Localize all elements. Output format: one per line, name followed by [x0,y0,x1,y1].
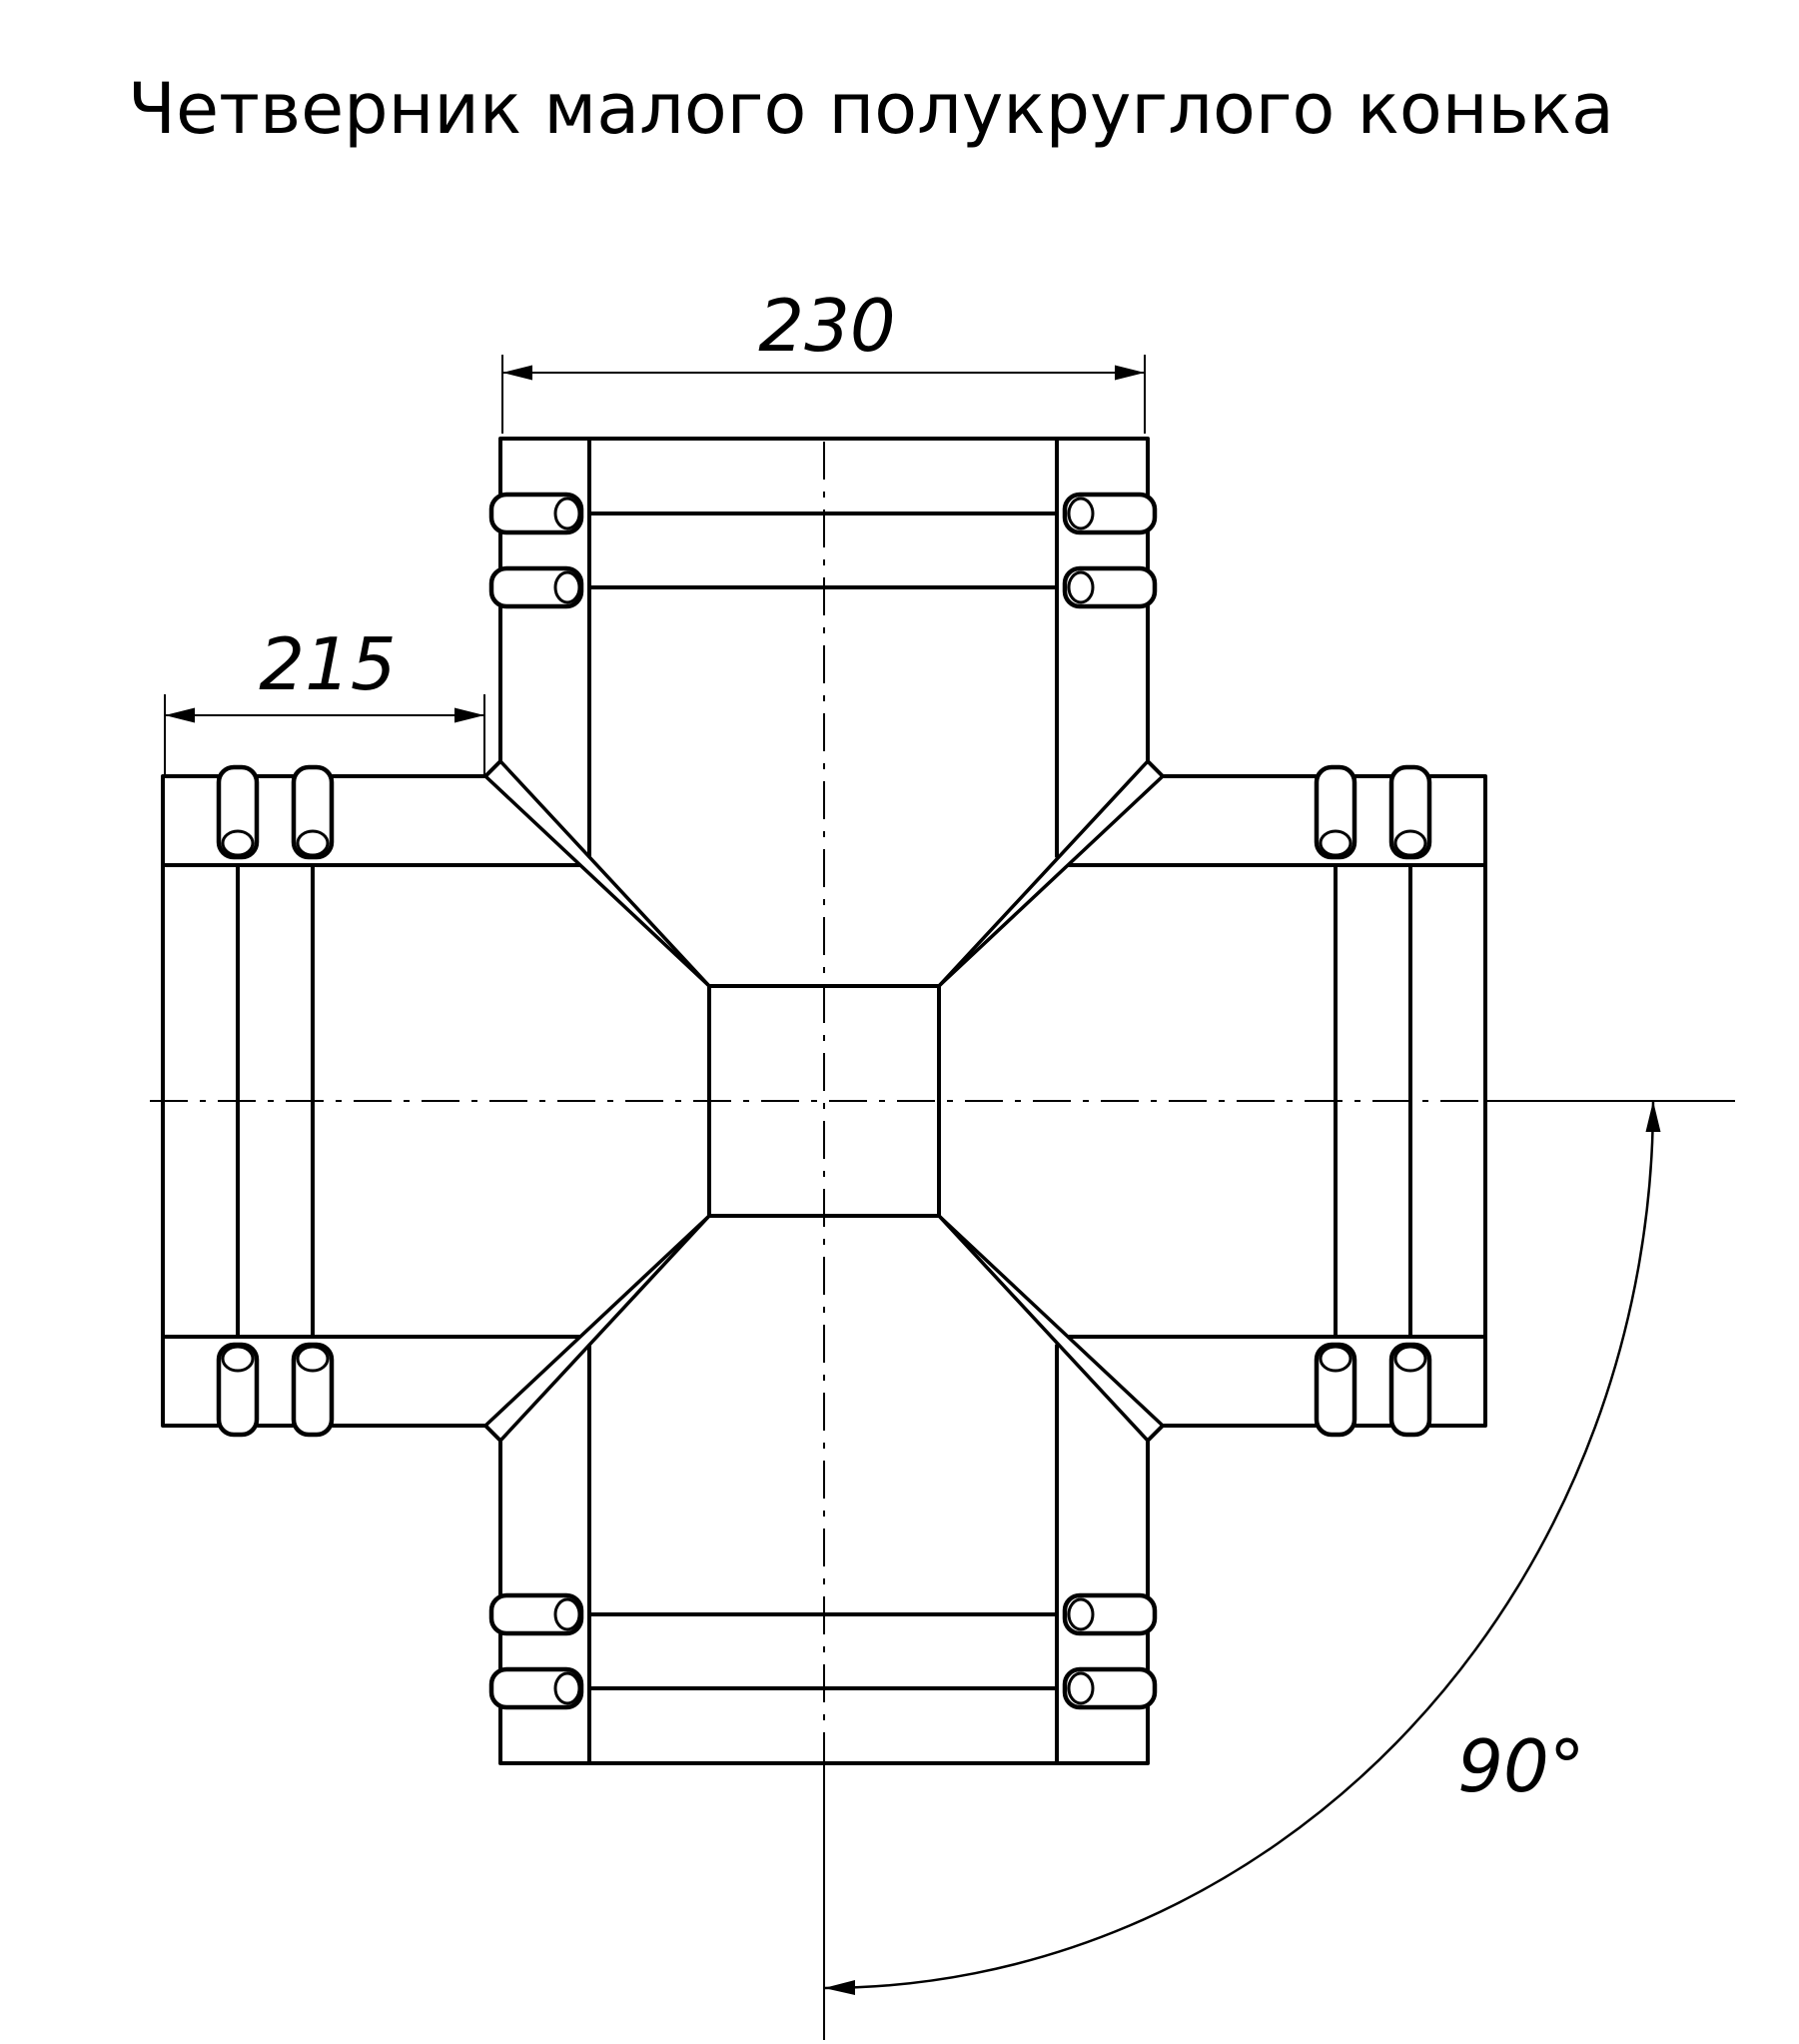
seam-clamp [491,495,581,532]
seam-clamp [1391,1345,1429,1435]
arrowhead-arc-top [1646,1101,1661,1132]
dimension-value-left-length: 215 [259,622,396,706]
dimension-left-length: 215 [165,622,484,774]
seam-clamp [491,1595,581,1633]
seam-clamp [294,1345,332,1435]
arrowhead-arc-bottom [824,1980,855,1995]
arrowhead-left [502,366,532,381]
dimension-value-top-width: 230 [758,284,895,368]
seam-clamp [294,767,332,857]
drawing-page: Четверник малого полукруглого конька [0,0,1799,2044]
seam-clamp [1391,767,1429,857]
seam-clamp [1317,1345,1354,1435]
technical-drawing: Четверник малого полукруглого конька [0,0,1799,2044]
dimension-top-width: 230 [502,284,1145,434]
drawing-title: Четверник малого полукруглого конька [128,68,1614,150]
seam-clamp [219,1345,257,1435]
seam-clamp [491,1669,581,1707]
dimension-value-angle: 90° [1457,1724,1585,1808]
arrowhead-left [165,708,195,723]
arrowhead-right [1115,366,1145,381]
seam-clamp [1317,767,1354,857]
seam-clamp [219,767,257,857]
arrowhead-right [454,708,484,723]
seam-clamp [491,568,581,606]
